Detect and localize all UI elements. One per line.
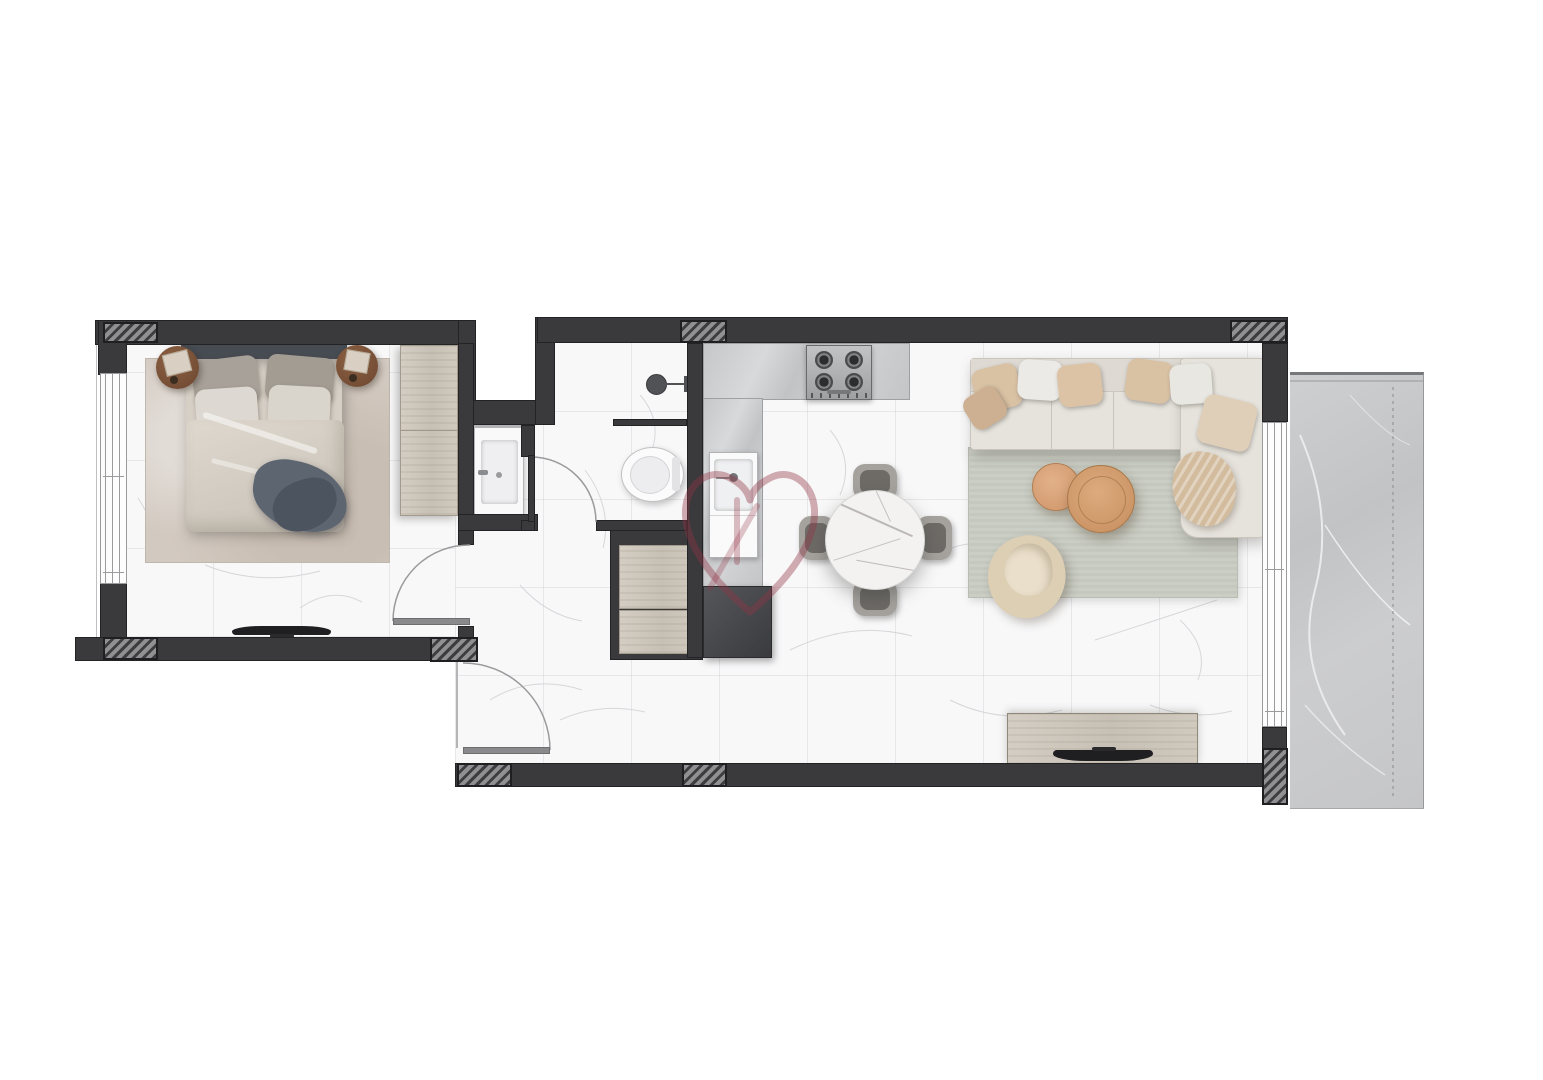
coffee-table-ring (1078, 476, 1126, 524)
window-transom (1265, 711, 1284, 712)
nightstand-right (336, 345, 378, 387)
hatch-column-bottom-entry (457, 763, 512, 787)
wall-column-left-bottom (100, 583, 127, 639)
sofa-cushion-divider (1113, 392, 1114, 449)
hatch-column-balcony (1262, 748, 1288, 805)
dining-table-vein (839, 503, 913, 537)
dining-table (825, 490, 925, 590)
hatch-column-bottom-left (103, 637, 158, 660)
nightstand-knob-icon (170, 376, 178, 384)
shower-head-icon (646, 374, 667, 395)
stove-burner-icon (845, 373, 863, 391)
window-frame-line (1267, 423, 1268, 726)
bedroom-door-leaf (393, 618, 470, 625)
wall-bottom-main (455, 763, 1288, 787)
kitchen-sink-basin (714, 459, 753, 511)
window-frame-line (105, 374, 106, 583)
living-room-window (1262, 422, 1287, 727)
hatch-column-bottom-mid (682, 763, 727, 787)
window-transom (1265, 569, 1284, 570)
kitchen-faucet-spout (716, 477, 730, 479)
wall-bath-bottom-right (596, 520, 687, 531)
stove-burner-icon (815, 373, 833, 391)
entry-door-leaf (463, 747, 550, 754)
balcony-marble-veins (1290, 375, 1423, 808)
wall-column-right-bottom (1262, 727, 1287, 749)
armchair-seat (1003, 542, 1055, 597)
bathroom-door-arc (526, 452, 601, 527)
dining-table-vein (856, 560, 915, 571)
bedroom-door-arc (389, 541, 474, 625)
bedroom-window (100, 373, 127, 584)
nightstand-knob-icon (349, 374, 357, 382)
dining-table-vein (834, 538, 901, 561)
vanity-faucet-icon (478, 470, 488, 475)
wardrobe (400, 345, 458, 516)
toilet (621, 447, 684, 502)
bathroom-door-leaf (528, 455, 535, 522)
window-transom (103, 476, 124, 477)
hatch-column-top-left (103, 322, 158, 343)
entry-door-arc (458, 658, 555, 755)
kitchen-dark-appliance (703, 586, 772, 658)
wardrobe-door-divider (401, 430, 457, 431)
dining-table-vein (873, 490, 891, 522)
gas-stove (806, 345, 872, 400)
vanity-sink-unit (474, 427, 524, 515)
sofa-pillow-beige (1123, 357, 1174, 405)
nightstand-left (156, 346, 199, 389)
coffee-table-large (1067, 465, 1135, 533)
nightstand-tray (162, 349, 193, 377)
floor-plan-canvas (0, 0, 1543, 1080)
window-frame-line (112, 374, 113, 583)
wall-top-main (537, 317, 1288, 343)
living-tv-stand (1092, 747, 1116, 751)
exterior-line-left (96, 322, 97, 637)
toilet-tank (672, 457, 680, 491)
toilet-bowl-inner (630, 456, 670, 494)
window-frame-line (119, 374, 120, 583)
stove-burner-icon (815, 351, 833, 369)
hatch-column-top-mid (680, 320, 727, 343)
wall-column-right-top (1262, 343, 1288, 422)
wall-bath-kitchen (687, 343, 703, 658)
hatch-column-top-right (1230, 320, 1287, 343)
kitchen-faucet-icon (729, 473, 738, 482)
nightstand-tray (343, 349, 370, 374)
duct-notch-void (476, 293, 535, 400)
sofa-pillow-beige (1056, 362, 1104, 408)
window-frame-line (1274, 423, 1275, 726)
balcony-floor (1290, 372, 1424, 809)
sink-counter-divider (710, 515, 757, 516)
living-tv (1053, 750, 1153, 761)
sofa-pillow-white (1017, 359, 1064, 402)
vanity-drain-icon (496, 472, 502, 478)
kitchen-sink-unit (709, 452, 758, 558)
entry-threshold-line (456, 662, 458, 748)
wall-shower-half (613, 419, 687, 426)
stove-handle (827, 390, 851, 394)
window-transom (103, 572, 124, 573)
dining-chair-seat (922, 523, 946, 553)
stove-burner-icon (845, 351, 863, 369)
window-frame-line (1281, 423, 1282, 726)
